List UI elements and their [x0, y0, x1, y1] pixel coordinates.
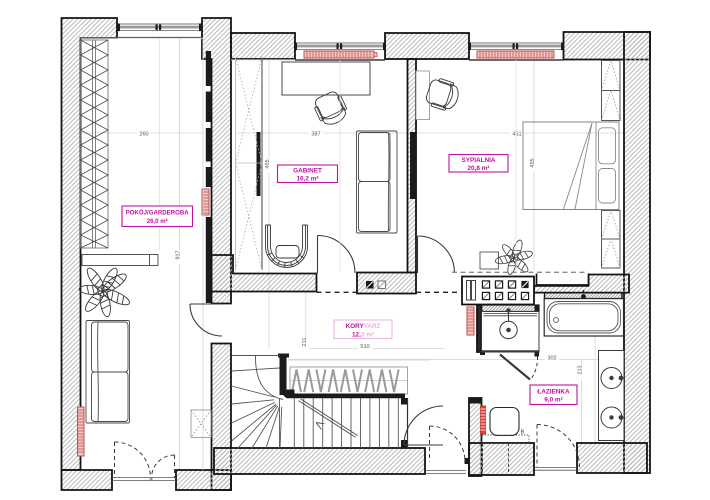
- svg-text:26,0 m²: 26,0 m²: [147, 218, 168, 225]
- svg-text:12,3 m²: 12,3 m²: [352, 332, 374, 339]
- svg-text:917: 917: [176, 250, 182, 259]
- svg-text:16,2 m²: 16,2 m²: [296, 176, 318, 183]
- svg-text:KORYTARZ: KORYTARZ: [346, 323, 381, 330]
- svg-text:20,8 m²: 20,8 m²: [467, 165, 489, 172]
- svg-text:451: 451: [512, 131, 521, 137]
- svg-text:ŁAZIENKA: ŁAZIENKA: [537, 389, 570, 396]
- svg-text:260: 260: [139, 131, 148, 137]
- svg-text:455: 455: [265, 159, 271, 168]
- svg-text:302: 302: [547, 356, 556, 362]
- svg-text:SYPIALNIA: SYPIALNIA: [461, 157, 495, 164]
- svg-text:510: 510: [360, 344, 369, 350]
- svg-text:211: 211: [302, 338, 308, 347]
- svg-text:9,0 m²: 9,0 m²: [544, 397, 562, 404]
- svg-text:B: B: [521, 430, 525, 436]
- svg-text:387: 387: [311, 131, 320, 137]
- svg-text:455: 455: [530, 158, 536, 167]
- svg-text:213: 213: [578, 365, 584, 374]
- svg-text:POKÓJ/GARDEROBA: POKÓJ/GARDEROBA: [126, 209, 190, 217]
- svg-text:GABINET: GABINET: [293, 168, 322, 175]
